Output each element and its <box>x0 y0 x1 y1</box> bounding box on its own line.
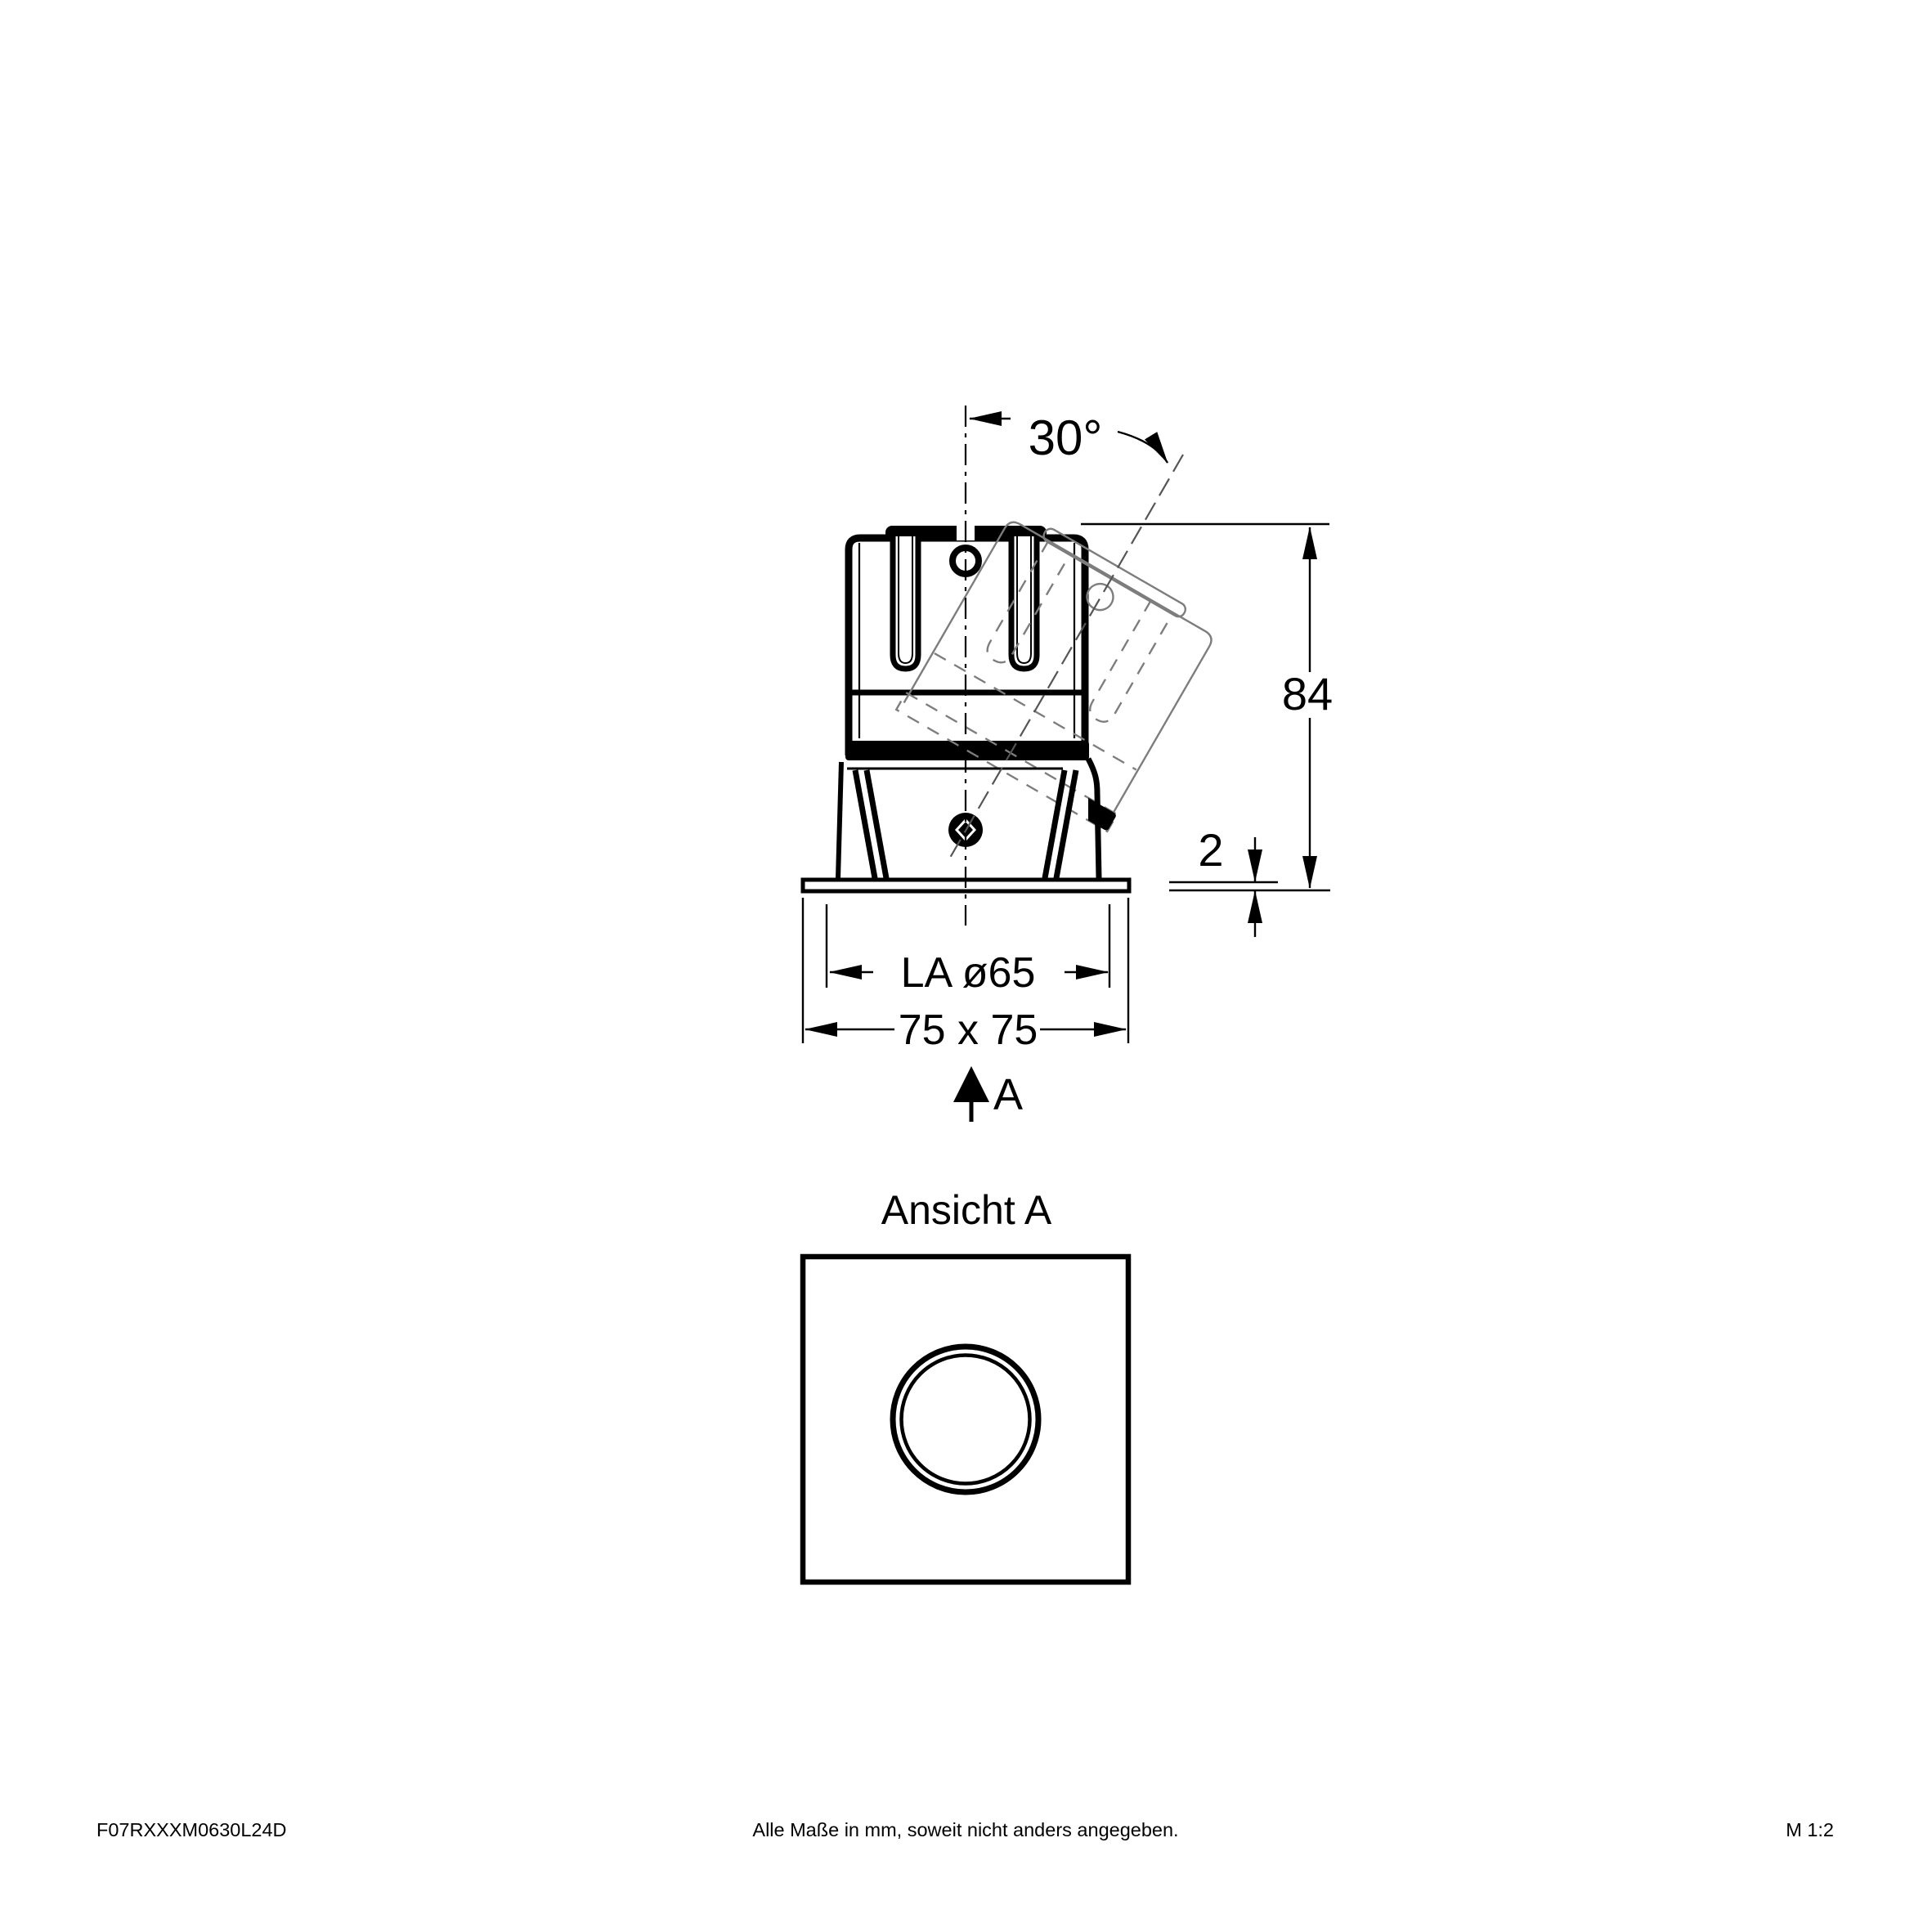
dimensions <box>803 419 1330 1043</box>
trim-thickness-label: 2 <box>1198 824 1223 876</box>
angle-arrow-arc <box>1118 432 1168 463</box>
footer: F07RXXXM0630L24D Alle Maße in mm, soweit… <box>96 1819 1834 1840</box>
side-view <box>845 524 1089 760</box>
footer-scale: M 1:2 <box>1786 1819 1834 1840</box>
view-direction-marker <box>953 1066 989 1122</box>
cutout-dimension-label: LA ø65 <box>901 949 1036 997</box>
drawing-sheet: 30° 84 2 LA ø65 75 x 75 A Ansicht A F07R… <box>0 0 1932 1932</box>
overall-size-label: 75 x 75 <box>899 1006 1038 1054</box>
tilt-angle-label: 30° <box>1029 410 1103 465</box>
height-dimension-label: 84 <box>1282 668 1333 719</box>
footer-article-code: F07RXXXM0630L24D <box>96 1819 287 1840</box>
front-view: Ansicht A <box>803 1187 1128 1582</box>
module-slot-left <box>893 536 918 669</box>
footer-note: Alle Maße in mm, soweit nicht anders ang… <box>752 1819 1178 1840</box>
front-view-title: Ansicht A <box>881 1187 1052 1233</box>
view-arrow-label: A <box>993 1070 1023 1119</box>
ghost-slot-right <box>1086 600 1173 726</box>
technical-drawing-canvas: 30° 84 2 LA ø65 75 x 75 A Ansicht A F07R… <box>0 0 1932 1932</box>
housing-outer-wall-left <box>838 762 841 878</box>
tilted-axis-line <box>950 455 1183 858</box>
front-view-square <box>803 1257 1128 1582</box>
